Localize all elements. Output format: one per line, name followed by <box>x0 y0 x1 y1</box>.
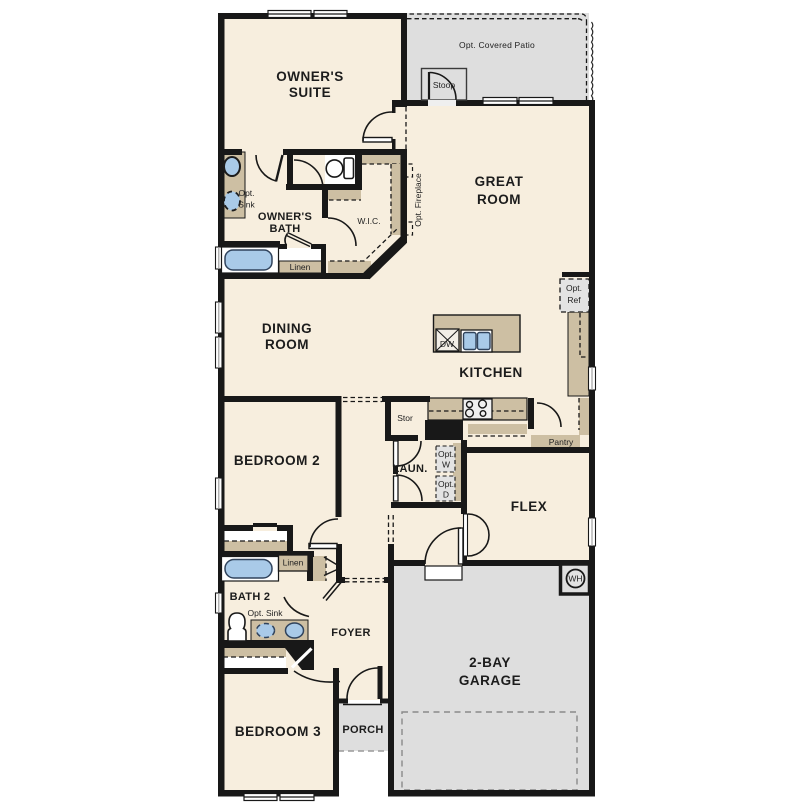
svg-text:Opt.: Opt. <box>438 479 454 489</box>
svg-text:Linen: Linen <box>290 262 311 272</box>
svg-text:DW: DW <box>440 339 454 349</box>
svg-text:BATH 2: BATH 2 <box>230 591 271 603</box>
svg-text:Opt. Covered Patio: Opt. Covered Patio <box>459 40 535 50</box>
svg-text:W: W <box>442 460 450 470</box>
svg-text:OWNER'S: OWNER'S <box>276 69 343 84</box>
svg-text:SUITE: SUITE <box>289 85 331 100</box>
svg-text:WH: WH <box>568 574 582 584</box>
svg-text:BEDROOM 2: BEDROOM 2 <box>234 453 320 468</box>
svg-text:OWNER'S: OWNER'S <box>258 211 312 223</box>
svg-text:2-BAY: 2-BAY <box>469 655 511 670</box>
svg-text:Stor: Stor <box>397 413 413 423</box>
svg-text:Opt.: Opt. <box>438 449 454 459</box>
svg-text:PORCH: PORCH <box>342 724 383 736</box>
svg-text:LAUN.: LAUN. <box>392 463 427 475</box>
svg-text:FOYER: FOYER <box>331 627 370 639</box>
svg-text:Sink: Sink <box>238 200 255 210</box>
svg-text:DINING: DINING <box>262 321 312 336</box>
svg-text:Opt.: Opt. <box>238 188 254 198</box>
svg-text:ROOM: ROOM <box>265 337 309 352</box>
svg-text:FLEX: FLEX <box>511 499 548 514</box>
svg-text:Ref: Ref <box>567 295 581 305</box>
svg-text:GARAGE: GARAGE <box>459 673 521 688</box>
svg-text:KITCHEN: KITCHEN <box>459 365 523 380</box>
svg-text:Opt. Fireplace: Opt. Fireplace <box>413 173 423 227</box>
svg-text:Opt. Sink: Opt. Sink <box>248 608 284 618</box>
svg-text:Linen: Linen <box>283 558 304 568</box>
svg-text:W.I.C.: W.I.C. <box>357 216 380 226</box>
svg-text:D: D <box>443 490 449 500</box>
svg-text:Opt.: Opt. <box>566 283 582 293</box>
svg-text:Pantry: Pantry <box>549 437 574 447</box>
svg-text:BATH: BATH <box>270 223 301 235</box>
svg-text:BEDROOM 3: BEDROOM 3 <box>235 724 321 739</box>
svg-text:ROOM: ROOM <box>477 192 521 207</box>
svg-text:Stoop: Stoop <box>433 80 455 90</box>
svg-text:GREAT: GREAT <box>475 174 524 189</box>
